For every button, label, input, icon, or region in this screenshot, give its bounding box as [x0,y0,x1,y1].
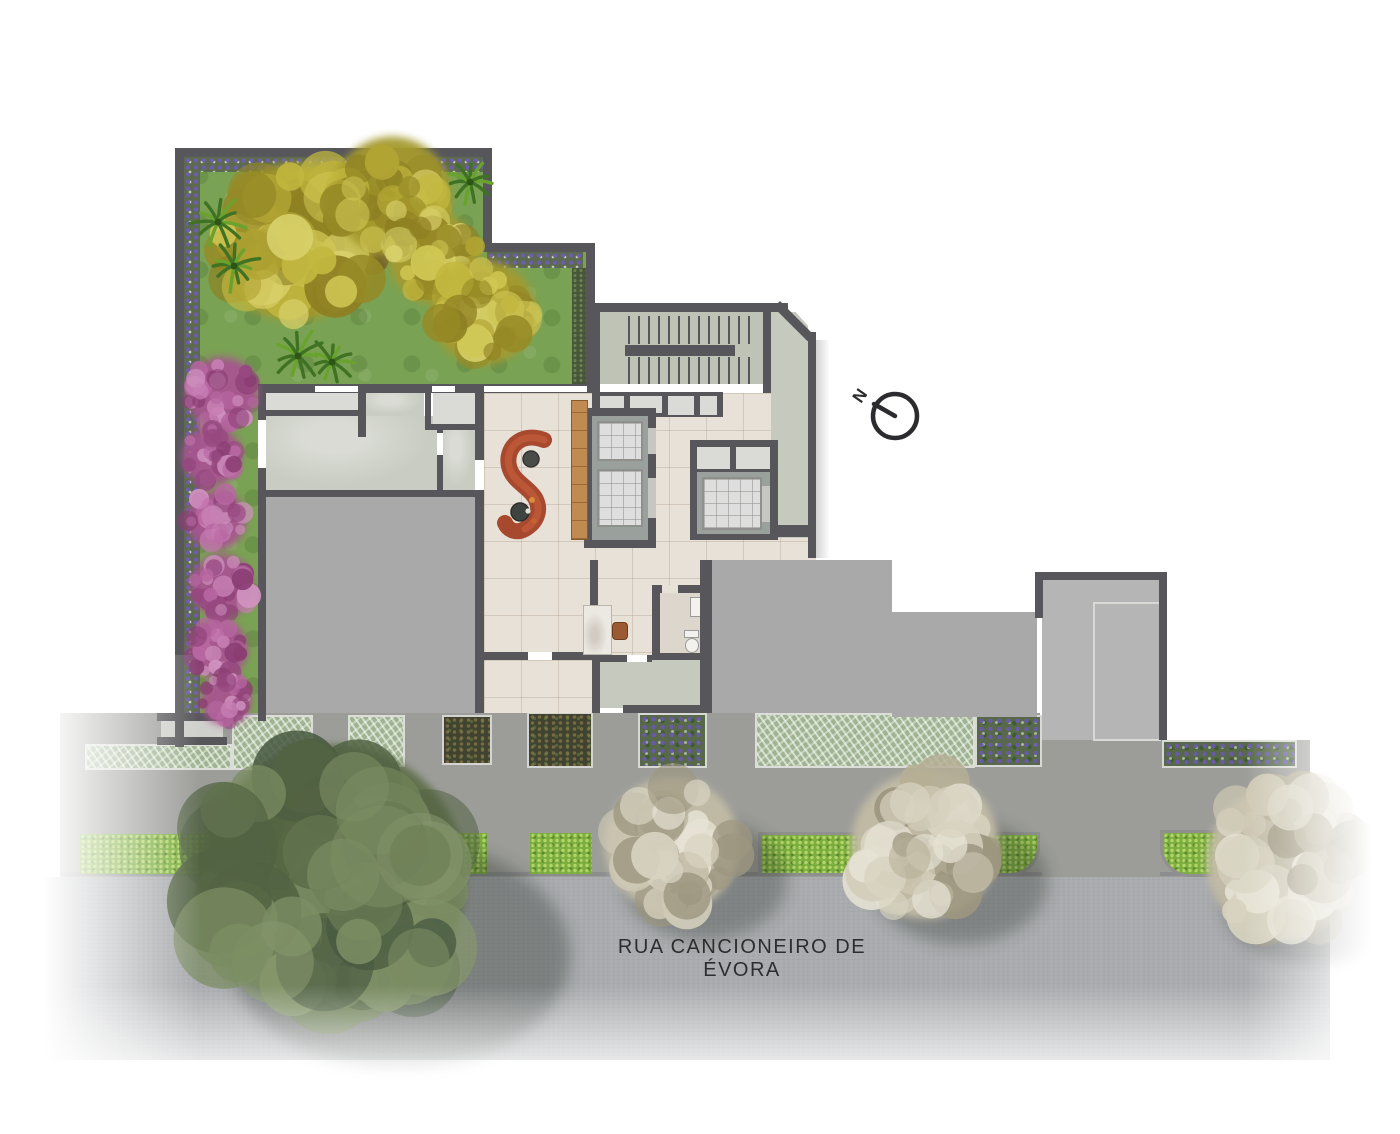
elevator-door [648,478,656,518]
corridor-floor [443,430,475,490]
concierge-desk [583,605,612,655]
planting-bed-silver [232,715,313,770]
elevator-cab [597,421,643,461]
window-strip [315,386,358,392]
elevator-door [762,486,770,522]
north-arrow-icon: N [849,385,917,438]
planting-bed-dark [527,712,593,768]
door-opening [627,655,647,662]
stair-treads-upper [628,316,758,344]
driveway-wall [1159,572,1167,740]
planting-bed-silver [755,713,975,768]
back-of-house-floor [266,416,437,490]
garden-wall [175,148,492,157]
stairwell-wall [592,303,788,312]
garden-wall [483,148,492,252]
building-mass-far-right [892,612,1037,717]
edge-fade-right [1245,520,1400,1134]
driveway-wall [1035,572,1167,580]
elevator-door [648,428,656,454]
elevator-cab [702,477,762,530]
toilet-tank [684,630,699,638]
planting-bed-silver [348,715,405,767]
parking-space-marking [1093,602,1161,741]
stairwell-wall [763,312,771,393]
toilet-bowl [685,638,699,653]
back-of-house-floor [366,393,424,416]
edge-fade-bottom [0,985,1400,1134]
door-opening [528,652,552,660]
duct-cell [700,396,717,415]
duct-cell [668,396,694,415]
flower-border-extension [487,252,583,268]
window-strip [432,386,455,392]
building-mass-left [266,497,475,713]
garden-wall [483,243,595,252]
entrance-wall [623,705,712,713]
flower-border-top [184,157,483,172]
vestibule-floor [600,660,700,708]
interior-wall [266,410,358,416]
stairwell-wall [592,303,600,393]
interior-wall [700,560,712,713]
door-leaf [437,433,443,455]
site-plan: N RUA CANCIONEIRO DE ÉVORA [0,0,1400,1134]
street-hedge [530,833,592,874]
street-hedge [758,832,1040,876]
street-hedge [445,833,487,874]
interior-wall [266,490,475,497]
interior-wall [358,393,366,437]
street-name-label: RUA CANCIONEIRO DE ÉVORA [592,936,892,964]
interior-wall [590,560,598,605]
planting-bed-dark [442,715,492,765]
elevator-cab [597,469,643,527]
garden-lawn [184,157,483,385]
desk-chair [612,622,628,640]
building-shadow [816,340,830,558]
garden-hedge-line [572,268,586,386]
lobby-floor-extension [484,660,592,713]
vestibule-wall [592,655,600,713]
window-strip [258,420,266,468]
bathroom-door-opening [662,585,678,593]
service-room-floor [266,393,358,410]
garden-lawn-extension [483,252,586,385]
building-mass-right [712,560,892,713]
duct-cell [697,447,730,469]
lobby-left-wall [475,393,484,713]
service-room-floor [433,393,475,427]
stair-treads-lower [628,357,758,384]
planting-bed-purple [638,713,707,768]
wood-bench [571,400,588,540]
stair-landing-rail [625,345,735,356]
flower-border-left [184,157,200,713]
driveway-wall [1035,572,1043,618]
lobby-glass-wall [484,386,587,392]
north-label: N [849,385,872,406]
planting-bed-purple [975,715,1042,767]
door-opening [475,460,484,490]
duct-cell [736,447,770,469]
interior-wall [425,424,481,430]
